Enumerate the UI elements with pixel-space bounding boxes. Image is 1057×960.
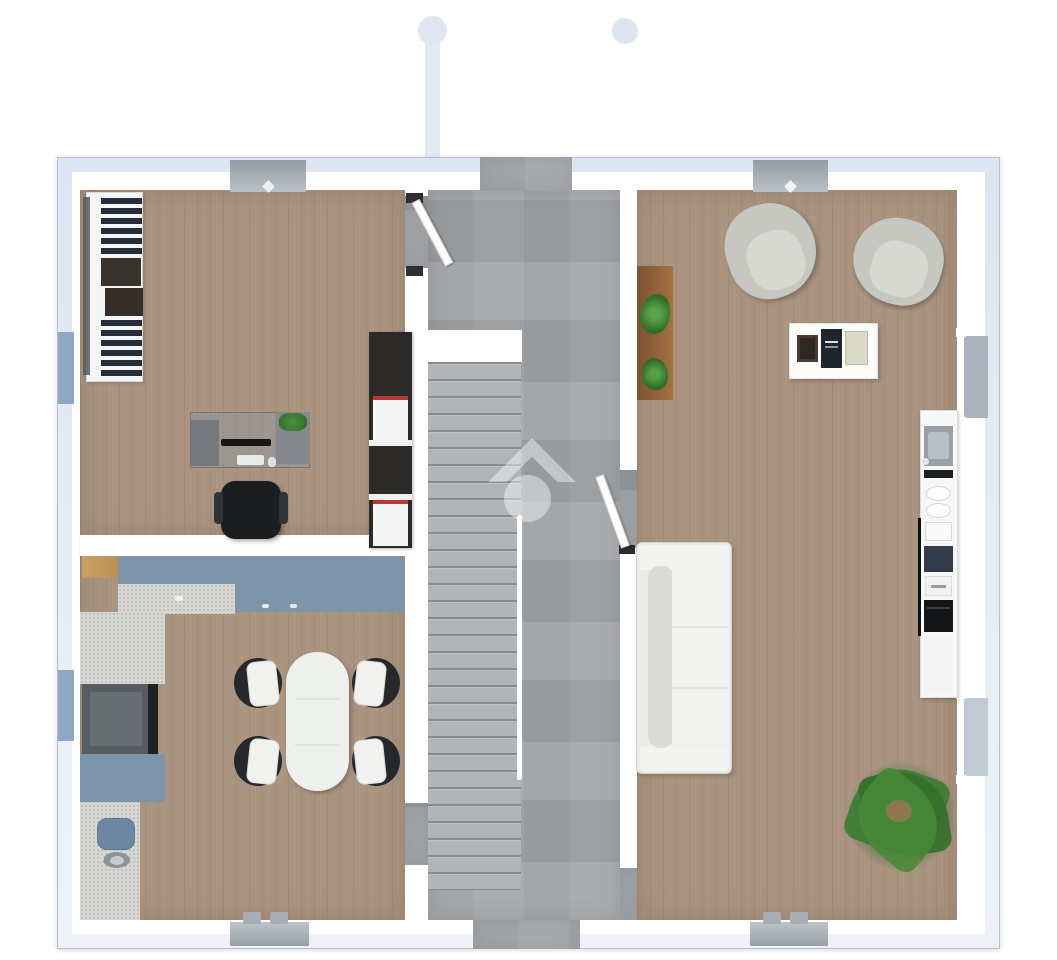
window-right-top-jamb-a <box>956 328 966 337</box>
coffee-table-book-line-2 <box>825 346 838 348</box>
desk-keyboard <box>237 455 264 465</box>
office-chair-arm-right <box>279 492 288 524</box>
kitchenette-drawer-stack <box>924 636 953 694</box>
printer-top-stripe <box>373 396 408 400</box>
sofa-seat-seam-1 <box>672 626 729 628</box>
kitchenette-roll-2 <box>926 503 951 518</box>
dining-table <box>286 652 349 791</box>
stair-top-wall <box>428 330 522 362</box>
gutter-pipe-cap <box>418 16 447 45</box>
window-right-top <box>964 336 988 418</box>
coffee-table-basket <box>845 331 868 365</box>
kitchen-counter-wood-piece <box>82 556 118 578</box>
kitchenette-box <box>925 522 952 541</box>
coffee-table-book-line-1 <box>825 341 838 343</box>
window-sill-bottom-right <box>750 922 828 946</box>
exit-concrete-pad <box>473 920 580 949</box>
desk-plant <box>279 413 307 431</box>
dining-chair-tl-seat <box>246 660 281 708</box>
office-bookshelf-books-bottom <box>101 320 142 378</box>
sofa-backrest <box>648 566 674 748</box>
printer-bottom-stripe <box>373 500 408 504</box>
kitchen-doorway-opening <box>405 803 428 865</box>
printer-bottom-unit <box>373 504 408 546</box>
dining-table-seam-2 <box>295 744 340 746</box>
dining-chair-br-seat <box>353 738 388 786</box>
sofa-seat <box>672 566 729 748</box>
kitchenette-roll-1 <box>926 486 951 501</box>
floor-plant-core <box>886 800 912 822</box>
office-chair <box>221 481 281 539</box>
desk-cabinet-left <box>191 420 219 466</box>
office-bookshelf-books-top <box>101 198 142 254</box>
roof-vent-dot <box>612 18 638 44</box>
stair-railing <box>517 515 522 780</box>
window-sill-bottom-right-notch-a <box>763 912 781 924</box>
kitchen-cabinet-left-low <box>80 754 165 802</box>
kitchen-handle-dot-b <box>290 604 297 608</box>
coffee-table-book <box>821 329 842 368</box>
kitchen-stool <box>97 818 135 850</box>
office-bookshelf-box-1 <box>101 258 141 286</box>
coffee-table-tray-inner <box>800 338 815 359</box>
window-sill-bottom-right-notch-b <box>790 912 808 924</box>
desk-mouse <box>268 457 276 467</box>
window-sill-bottom-left-notch-a <box>243 912 261 924</box>
kitchen-handle-dot-a <box>262 604 269 608</box>
office-door-hinge-bottom <box>406 266 423 276</box>
office-chair-arm-left <box>214 492 223 524</box>
staircase <box>428 362 521 890</box>
window-right-bottom-jamb-b <box>956 775 966 784</box>
entry-concrete-pad <box>480 157 572 191</box>
sofa-seat-seam-2 <box>672 687 729 689</box>
gutter-pipe-body <box>425 28 440 170</box>
sofa-armrest-bottom <box>639 746 729 771</box>
kitchenette-sink-basin <box>928 432 949 459</box>
dining-chair-tr-seat <box>353 660 388 708</box>
office-bookshelf-box-2 <box>105 288 143 316</box>
desk-monitor <box>221 439 271 446</box>
kitchen-counter-left-arm <box>80 612 165 684</box>
dining-chair-bl-seat <box>246 738 281 786</box>
dining-table-seam-1 <box>295 698 340 700</box>
kitchenette-faucet <box>922 458 929 465</box>
office-bookshelf-back-strip <box>83 197 90 375</box>
kitchenette-appliance <box>924 546 953 572</box>
window-right-bottom <box>964 698 988 776</box>
kitchenette-oven-line <box>927 607 950 609</box>
window-left-top <box>58 332 74 404</box>
window-sill-bottom-left-notch-b <box>270 912 288 924</box>
window-left-bottom <box>58 670 74 741</box>
floor-plan-render <box>0 0 1057 960</box>
kitchenette-oven <box>924 600 953 632</box>
hallway-floor-extension <box>620 868 637 920</box>
kitchenette-drawer-handle <box>931 585 946 588</box>
kitchenette-counter-edge <box>918 518 921 636</box>
kitchenette-black-strip <box>924 470 953 478</box>
kitchen-kettle-lid <box>110 856 124 865</box>
watermark-dot-icon <box>504 475 551 522</box>
wall-kitchen-hallway <box>405 556 428 920</box>
kitchen-stove-edge <box>148 684 158 754</box>
kitchen-faucet-dot <box>175 596 183 601</box>
kitchen-stove-inner <box>90 692 142 746</box>
console-plant-bottom <box>642 358 668 390</box>
printer-top-unit <box>373 400 408 442</box>
kitchen-kettle-knob <box>98 856 104 862</box>
window-sill-bottom-left <box>230 922 309 946</box>
